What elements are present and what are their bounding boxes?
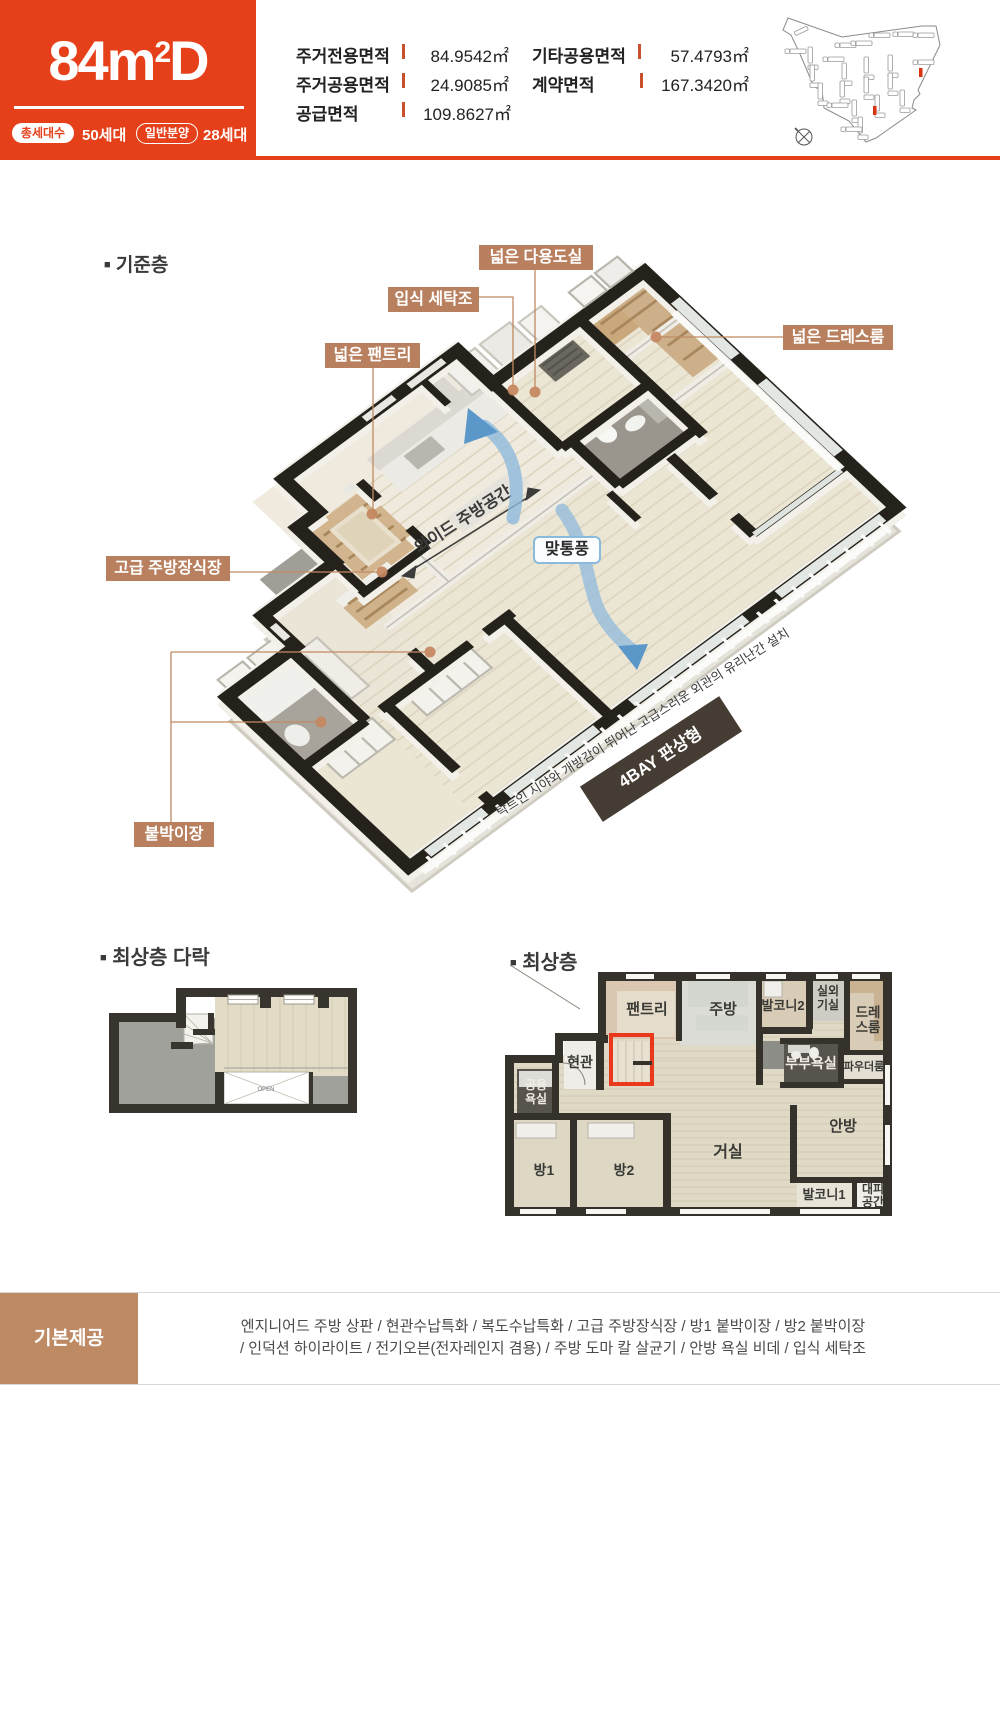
- svg-text:안방: 안방: [829, 1117, 857, 1135]
- svg-text:발코니1: 발코니1: [802, 1187, 845, 1202]
- svg-text:거실: 거실: [713, 1143, 742, 1161]
- svg-text:실외: 실외: [817, 983, 839, 998]
- svg-text:기실: 기실: [817, 997, 839, 1012]
- svg-text:욕실: 욕실: [525, 1091, 547, 1106]
- svg-text:부부욕실: 부부욕실: [785, 1055, 837, 1071]
- svg-text:파우더룸: 파우더룸: [844, 1059, 884, 1073]
- svg-text:발코니2: 발코니2: [761, 998, 804, 1013]
- svg-text:공용: 공용: [525, 1077, 547, 1092]
- svg-text:OPEN: OPEN: [257, 1087, 274, 1093]
- svg-text:스룸: 스룸: [856, 1020, 881, 1035]
- svg-text:주방: 주방: [709, 1000, 737, 1018]
- svg-text:대피: 대피: [862, 1181, 884, 1196]
- svg-text:팬트리: 팬트리: [626, 1001, 667, 1018]
- svg-text:드레: 드레: [856, 1005, 881, 1020]
- svg-text:방1: 방1: [534, 1162, 555, 1178]
- svg-text:공간: 공간: [862, 1194, 884, 1209]
- svg-text:현관: 현관: [567, 1054, 593, 1070]
- svg-text:방2: 방2: [614, 1162, 635, 1178]
